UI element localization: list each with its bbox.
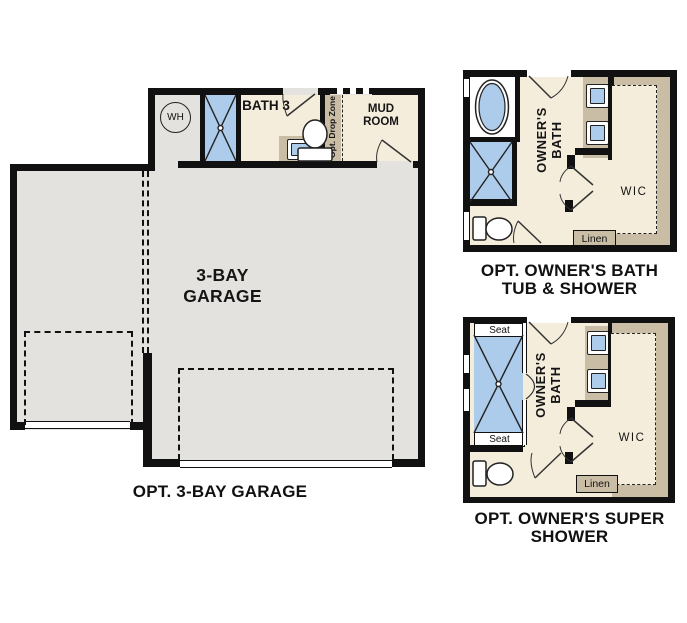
water-heater-circle: WH — [160, 102, 191, 133]
ss-wic-label: WIC — [616, 432, 648, 444]
ss-linen-closet: Linen — [576, 475, 618, 493]
owners-sink-1 — [586, 84, 609, 108]
left-bay-left-wall — [10, 164, 17, 430]
ss-hall-stub-a — [567, 407, 575, 421]
linen-label: Linen — [582, 233, 608, 245]
seat-bottom-label: Seat — [489, 434, 510, 445]
bath3-label: BATH 3 — [238, 98, 294, 113]
ss-left-window-1 — [463, 355, 470, 373]
bath3-shower — [205, 95, 236, 161]
ss-top-wall-b — [571, 317, 675, 323]
ss-caption: OPT. OWNER'S SUPER SHOWER — [452, 510, 687, 546]
garage-top-wall-a — [148, 88, 283, 95]
ss-left-window-2 — [463, 389, 470, 411]
bath3-dropzone-wall — [320, 95, 325, 161]
main-door-stub-left — [143, 459, 180, 467]
bath3-sink — [287, 139, 315, 160]
garage-upper-left-wall — [148, 88, 155, 171]
seat-top-label: Seat — [489, 325, 510, 336]
owners-bath-label: OWNER'S BATH — [534, 95, 564, 185]
owners-shower — [470, 142, 512, 199]
bay-divider-wall — [143, 353, 152, 467]
ss-linen-label: Linen — [584, 478, 610, 490]
main-garage-door — [180, 460, 392, 468]
owners-bath-caption: OPT. OWNER'S BATH TUB & SHOWER — [452, 262, 687, 298]
ss-top-wall-a — [463, 317, 527, 323]
owners-shower-wall-bottom — [463, 199, 512, 206]
ss-vanity-wall-bottom — [575, 400, 614, 407]
vanity-wall-bottom — [575, 148, 614, 155]
left-bay-door-stub-left — [10, 422, 25, 430]
owners-sink-2 — [586, 121, 609, 145]
ob-top-wall-b — [571, 70, 677, 77]
ob-bottom-wall — [463, 245, 677, 252]
drop-zone-label: Opt. Drop Zone — [327, 92, 337, 162]
shower-glass-lower — [522, 400, 527, 445]
ss-wic-floor — [611, 333, 656, 485]
super-shower — [474, 335, 523, 433]
garage-room-label: 3-BAY GARAGE — [150, 265, 295, 307]
bay-divider-dashed-2 — [147, 171, 149, 353]
shower-glass-upper — [522, 323, 527, 373]
drop-zone-dashed-edge — [342, 95, 343, 161]
ss-sink-2 — [587, 369, 610, 393]
ob-left-window-1 — [463, 79, 470, 97]
bath-block-bottom-wall-a — [178, 161, 377, 168]
hall-wall-stub-b — [565, 200, 573, 212]
ss-hall-stub-b — [565, 452, 573, 464]
hall-wall-stub-a — [567, 155, 575, 169]
ss-owners-bath-label: OWNER'S BATH — [533, 340, 563, 430]
garage-caption: OPT. 3-BAY GARAGE — [85, 483, 355, 501]
tub-room-wall-right — [515, 77, 520, 142]
ss-wall-below-seat — [470, 445, 523, 452]
shower-seat-top: Seat — [474, 323, 525, 337]
wic-floor — [612, 85, 657, 234]
floorplan-page: WH BATH 3 MUD ROOM Opt. Drop Zone 3-BAY … — [0, 0, 687, 623]
left-bay-top-wall — [10, 164, 155, 171]
ss-right-wall — [668, 317, 675, 503]
mudroom-label: MUD ROOM — [345, 103, 417, 129]
owners-shower-wall-right — [512, 142, 517, 206]
ob-top-wall-a — [463, 70, 527, 77]
tub-room-floor — [470, 77, 515, 137]
ss-bottom-wall — [463, 497, 675, 503]
ob-right-wall — [670, 70, 677, 252]
left-bay-parking-outline — [24, 331, 133, 425]
wic-label: WIC — [618, 186, 650, 198]
bath3-shower-wall-left — [200, 95, 205, 161]
bath-block-bottom-wall-b — [413, 161, 425, 168]
ss-sink-1 — [587, 331, 610, 355]
main-bay-parking-outline — [178, 368, 394, 460]
ob-left-window-2 — [463, 212, 470, 240]
water-heater-label: WH — [167, 112, 184, 123]
bay-divider-dashed-1 — [142, 171, 144, 353]
garage-right-wall — [418, 88, 425, 467]
